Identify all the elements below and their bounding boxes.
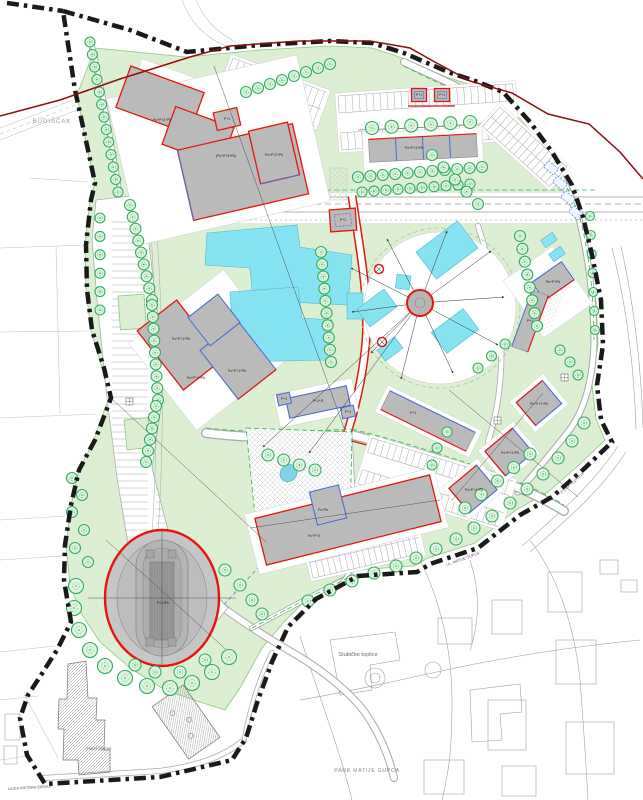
tree-icon xyxy=(565,357,575,367)
tree-icon xyxy=(323,332,334,343)
tree-icon xyxy=(390,560,402,572)
tree-icon xyxy=(246,594,258,606)
building-storey-label: P+1 xyxy=(281,397,287,401)
tree-icon xyxy=(521,483,533,495)
tree-icon xyxy=(566,435,578,447)
tree-icon xyxy=(317,259,328,270)
tree-icon xyxy=(552,452,564,464)
boundary-spur xyxy=(7,3,63,11)
tree-icon xyxy=(492,475,504,487)
tree-icon xyxy=(326,357,337,368)
tree-icon xyxy=(522,269,533,280)
tree-icon xyxy=(319,283,330,294)
tree-icon xyxy=(515,231,526,242)
tree-icon xyxy=(77,490,88,501)
tree-icon xyxy=(104,137,114,147)
plan-canvas: TOPLIŠČAK xyxy=(0,0,643,800)
tree-icon xyxy=(94,87,104,97)
tree-icon xyxy=(417,183,427,193)
tree-icon xyxy=(301,67,312,78)
building-storey-label: Po+P+1+Pk xyxy=(187,376,205,380)
tree-icon xyxy=(385,120,398,133)
tree-icon xyxy=(464,116,477,129)
tree-icon xyxy=(578,417,590,429)
survey-circle-marker xyxy=(378,338,387,347)
tree-icon xyxy=(517,243,528,254)
tree-icon xyxy=(429,182,439,192)
tree-icon xyxy=(369,186,379,196)
tree-icon xyxy=(438,162,449,173)
tree-icon xyxy=(144,283,155,294)
tree-icon xyxy=(555,345,565,355)
tree-icon xyxy=(427,460,437,470)
tree-icon xyxy=(318,271,329,282)
tree-icon xyxy=(309,464,321,476)
area-label-park-matije-gupca: PARK MATIJE GUPCA xyxy=(334,768,399,774)
tree-icon xyxy=(222,650,237,665)
area-label-budiscak: BUDIŠČAK xyxy=(33,118,72,125)
tree-icon xyxy=(524,448,536,460)
tree-icon xyxy=(101,125,111,135)
tree-icon xyxy=(277,75,288,86)
tree-icon xyxy=(99,112,109,122)
tree-icon xyxy=(442,427,452,437)
tree-icon xyxy=(90,62,100,72)
tree-icon xyxy=(136,247,147,258)
tree-icon xyxy=(174,666,186,678)
tree-icon xyxy=(486,510,498,522)
tree-icon xyxy=(573,370,583,380)
tree-icon xyxy=(427,166,438,177)
building-storey-label: P+1 xyxy=(345,410,351,414)
tree-icon xyxy=(149,666,161,678)
tree-icon xyxy=(529,308,540,319)
tree-icon xyxy=(133,235,144,246)
tree-icon xyxy=(108,162,118,172)
building-storey-label: Po+Pk xyxy=(318,508,328,512)
tree-icon xyxy=(473,199,484,210)
tree-icon xyxy=(97,100,107,110)
tree-icon xyxy=(87,50,97,60)
tree-icon xyxy=(234,579,246,591)
tree-icon xyxy=(393,184,403,194)
tree-icon xyxy=(150,359,161,370)
building-storey-label: Po+P+1+Pk xyxy=(501,451,519,455)
building-storey-label: P+1 xyxy=(416,93,422,97)
tree-icon xyxy=(405,183,415,193)
tree-icon xyxy=(353,172,364,183)
tree-icon xyxy=(430,543,442,555)
tree-icon xyxy=(98,659,113,674)
building-storey-label: P+1 xyxy=(410,411,416,415)
tree-icon xyxy=(92,75,102,85)
tree-icon xyxy=(205,665,220,680)
tree-icon xyxy=(140,679,155,694)
tree-icon xyxy=(459,502,471,514)
tree-icon xyxy=(151,371,162,382)
tree-icon xyxy=(450,174,461,185)
tree-icon xyxy=(95,231,105,241)
tree-icon xyxy=(468,522,480,534)
tree-icon xyxy=(427,150,438,161)
tree-icon xyxy=(532,321,543,332)
building-storey-label: Po+P+2+Pk xyxy=(265,153,283,157)
tree-icon xyxy=(316,247,327,258)
tree-icon xyxy=(149,412,160,423)
tree-icon xyxy=(464,163,475,174)
tree-icon xyxy=(111,175,121,185)
tree-icon xyxy=(432,443,442,453)
tree-icon xyxy=(424,118,437,131)
tree-icon xyxy=(325,59,336,70)
hotel-sljeme-building xyxy=(58,661,110,775)
tree-icon xyxy=(151,401,162,412)
tree-icon xyxy=(147,300,158,311)
survey-circle-marker xyxy=(375,265,384,274)
tree-icon xyxy=(256,608,268,620)
tree-icon xyxy=(278,454,290,466)
tree-icon xyxy=(85,37,95,47)
tree-icon xyxy=(152,383,163,394)
tree-icon xyxy=(590,307,599,316)
tree-icon xyxy=(149,335,160,346)
tree-icon xyxy=(69,579,84,594)
tree-icon xyxy=(113,187,123,197)
tree-icon xyxy=(83,557,94,568)
area-label-stubicke-toplice: Stubičke toplice xyxy=(338,652,377,658)
tree-icon xyxy=(70,543,81,554)
tree-icon xyxy=(72,623,87,638)
tree-icon xyxy=(365,171,376,182)
building-storey-label: P+1 xyxy=(340,218,346,222)
tree-icon xyxy=(127,211,138,222)
building-storey-label: P+1 xyxy=(527,319,533,323)
tree-icon xyxy=(147,423,158,434)
building-storey-label: Po+P+1+Pk xyxy=(530,402,548,406)
tree-icon xyxy=(95,250,105,260)
tree-icon xyxy=(390,169,401,180)
tree-icon xyxy=(95,268,105,278)
tree-icon xyxy=(143,445,154,456)
tree-icon xyxy=(452,164,463,175)
building-storey-label: Po+P+1+Pk xyxy=(228,369,246,373)
tree-icon xyxy=(589,288,598,297)
tree-icon xyxy=(147,311,158,322)
tree-icon xyxy=(262,449,274,461)
tree-icon xyxy=(527,295,538,306)
tree-icon xyxy=(106,150,116,160)
tree-icon xyxy=(145,434,156,445)
building-storey-label: P+1+R xyxy=(313,399,324,403)
tree-icon xyxy=(118,671,133,686)
site-plan-map: TOPLIŠČAK xyxy=(0,0,643,800)
tree-icon xyxy=(324,584,336,596)
tree-icon xyxy=(410,552,422,564)
tree-icon xyxy=(320,295,331,306)
tree-icon xyxy=(219,564,231,576)
street-label-ulica-viktora-sipeka: ULICA VIKTORA ŠIPEKA xyxy=(8,784,52,791)
tree-icon xyxy=(125,200,136,211)
tree-icon xyxy=(321,308,332,319)
building-storey-label: Po+P+2+Pk xyxy=(153,118,171,122)
tree-icon xyxy=(83,643,98,658)
tree-icon xyxy=(313,63,324,74)
tree-icon xyxy=(524,282,535,293)
tree-icon xyxy=(79,525,90,536)
tree-icon xyxy=(586,212,595,221)
building-storey-label: P+1 xyxy=(439,93,445,97)
building-storey-label: Po+P+1+Pk xyxy=(465,488,483,492)
tree-icon xyxy=(293,459,305,471)
tree-icon xyxy=(461,186,472,197)
tree-icon xyxy=(265,79,276,90)
tree-icon xyxy=(473,363,483,373)
tree-icon xyxy=(148,323,159,334)
tree-icon xyxy=(415,167,426,178)
tree-icon xyxy=(381,185,391,195)
area-label-hotel-sljeme: Hotel Sljeme xyxy=(87,746,112,751)
tree-icon xyxy=(591,326,600,335)
tree-icon xyxy=(322,320,333,331)
tree-icon xyxy=(95,305,105,315)
tree-icon xyxy=(141,271,152,282)
building-storey-label: Po+2Pk xyxy=(157,601,169,605)
tree-icon xyxy=(138,259,149,270)
tree-icon xyxy=(95,287,105,297)
tree-icon xyxy=(366,122,379,135)
tree-icon xyxy=(163,681,178,696)
tree-icon xyxy=(241,87,252,98)
building-storey-label: Po+P+1+Pk xyxy=(172,337,190,341)
tree-icon xyxy=(504,497,516,509)
tree-icon xyxy=(129,659,141,671)
tree-icon xyxy=(500,339,510,349)
tree-icon xyxy=(150,347,161,358)
tree-icon xyxy=(477,162,488,173)
tree-icon xyxy=(402,168,413,179)
tree-icon xyxy=(519,256,530,267)
tree-icon xyxy=(199,654,211,666)
building-storey-label: Po+P+2 xyxy=(308,534,320,538)
tree-icon xyxy=(185,676,200,691)
tree-icon xyxy=(357,187,367,197)
building-storey-label: Po+P+1+Pk xyxy=(405,146,423,150)
building-storey-label: P+1 xyxy=(224,117,230,121)
tree-icon xyxy=(444,117,457,130)
tree-icon xyxy=(377,170,388,181)
tree-icon xyxy=(253,83,264,94)
building-storey-label: Po+P+Pk xyxy=(546,280,561,284)
tree-icon xyxy=(441,181,451,191)
building-storey-label: (Po+P+3+Pk) xyxy=(216,154,236,158)
tree-icon xyxy=(130,223,141,234)
tree-icon xyxy=(405,119,418,132)
tree-icon xyxy=(95,213,105,223)
tree-icon xyxy=(324,344,335,355)
tree-icon xyxy=(450,533,462,545)
tree-icon xyxy=(508,462,520,474)
tree-icon xyxy=(537,468,549,480)
tree-icon xyxy=(141,457,152,468)
tree-icon xyxy=(289,71,300,82)
tree-icon xyxy=(487,351,497,361)
